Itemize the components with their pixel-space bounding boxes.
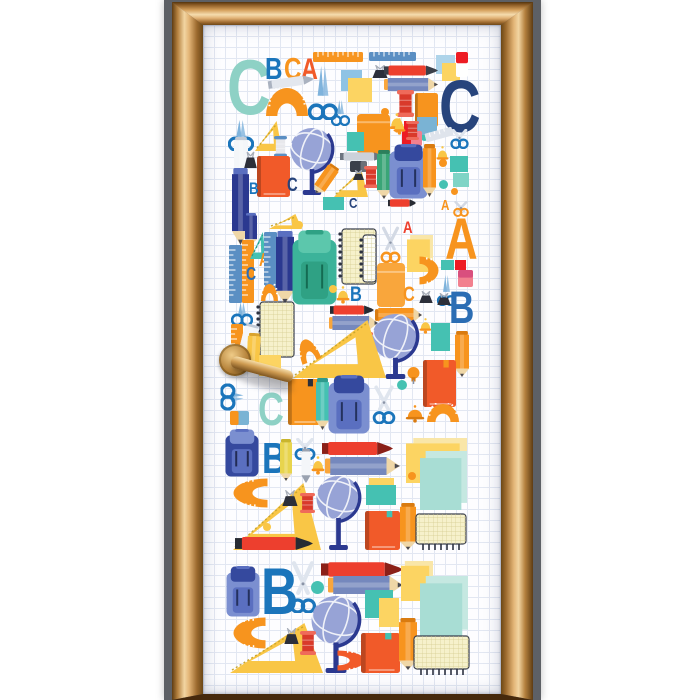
notebook-icon	[255, 301, 295, 358]
ruler-icon	[369, 52, 416, 61]
bell-icon	[405, 405, 425, 423]
papers-icon	[420, 576, 468, 637]
letter-A: A	[403, 220, 415, 235]
spool-icon	[274, 136, 287, 157]
scissorsO-icon	[379, 226, 402, 263]
dot-icon	[408, 472, 416, 480]
backpack-icon	[328, 375, 370, 434]
notebook-icon	[358, 234, 377, 283]
sticky-icon	[441, 260, 454, 270]
backpack-icon	[226, 566, 260, 617]
letter-C: C	[349, 197, 360, 211]
scissorsC-icon	[331, 99, 350, 126]
ruler-icon	[229, 245, 242, 303]
protractor-icon	[260, 283, 279, 302]
pencilH-icon	[325, 457, 400, 475]
clip-icon	[418, 291, 434, 303]
scissorsO-icon	[449, 129, 470, 149]
book-icon	[365, 511, 400, 550]
sticky-icon	[366, 485, 396, 505]
scissorsC-icon	[221, 384, 245, 411]
clip-icon	[283, 628, 300, 644]
penH-icon	[387, 198, 416, 208]
scissorsO-icon	[452, 201, 470, 217]
sticky-icon	[379, 598, 399, 627]
book-icon	[361, 633, 400, 673]
dot-icon	[451, 188, 458, 195]
book-icon	[423, 360, 456, 407]
triangle-icon	[269, 214, 302, 229]
globe-icon	[315, 475, 362, 550]
scissorsC-icon	[231, 301, 253, 326]
pencil-icon	[423, 144, 436, 197]
protractor-icon	[265, 87, 309, 117]
dot-icon	[263, 523, 271, 531]
bell-icon	[311, 456, 325, 475]
clip-icon	[243, 151, 258, 168]
door-graph-paper: CBCACBCCAAACACBCBCBB	[203, 25, 501, 694]
pushpin-icon	[405, 367, 422, 384]
letter-B: B	[350, 286, 365, 305]
papers-icon	[420, 451, 467, 510]
frame-top-bar	[172, 2, 533, 25]
protractor-icon	[426, 403, 460, 423]
door-outer-shadow: CBCACBCCAAACACBCBCBB	[164, 0, 541, 700]
sticky-icon	[455, 260, 466, 270]
book-icon	[257, 156, 290, 197]
spool-icon	[364, 166, 378, 188]
backpack-icon	[225, 429, 259, 477]
pencil-icon	[280, 439, 292, 481]
letter-C: C	[287, 177, 301, 194]
frame-bottom-bar	[172, 694, 533, 700]
sticky-icon	[431, 323, 450, 351]
bell-icon	[393, 118, 406, 135]
pencil-icon	[455, 331, 469, 377]
pencil-icon	[400, 503, 416, 550]
dot-icon	[397, 380, 407, 390]
letter-B: B	[449, 288, 482, 329]
penH-icon	[329, 304, 374, 316]
bell-icon	[336, 286, 350, 304]
notebook-icon	[415, 513, 467, 550]
penH-icon	[321, 440, 393, 457]
door-frame: CBCACBCCAAACACBCBCBB	[172, 2, 533, 700]
dot-icon	[439, 180, 448, 189]
scissorsO-icon	[371, 385, 397, 424]
letter-B: B	[249, 181, 261, 196]
letter-C: C	[258, 389, 291, 430]
frame-right-bar	[501, 2, 533, 700]
dot-icon	[311, 581, 324, 594]
letter-C: C	[403, 286, 418, 305]
folder-icon	[377, 263, 405, 307]
letter-A: A	[445, 214, 487, 266]
sticky-icon	[450, 156, 468, 172]
clip-icon	[436, 293, 452, 305]
notebook-icon	[413, 635, 470, 675]
eraser-icon	[458, 270, 473, 287]
spool-icon	[406, 121, 419, 140]
door-mural-photo: CBCACBCCAAACACBCBCBB	[0, 0, 700, 700]
clip-icon	[281, 490, 299, 506]
penH-icon	[383, 64, 438, 77]
sticky-icon	[347, 132, 364, 151]
eraser-icon	[230, 411, 249, 425]
dot-icon	[439, 159, 447, 167]
spool-icon	[300, 631, 316, 655]
penH-icon	[234, 535, 313, 552]
dot-icon	[381, 108, 389, 116]
backpack-icon	[292, 230, 337, 305]
letter-C: C	[246, 266, 259, 282]
ruler-icon	[313, 52, 363, 62]
sticky-icon	[348, 78, 372, 102]
sticky-icon	[323, 197, 344, 210]
spool-icon	[300, 493, 315, 513]
frame-left-bar	[172, 2, 203, 700]
sticky-icon	[453, 173, 469, 187]
